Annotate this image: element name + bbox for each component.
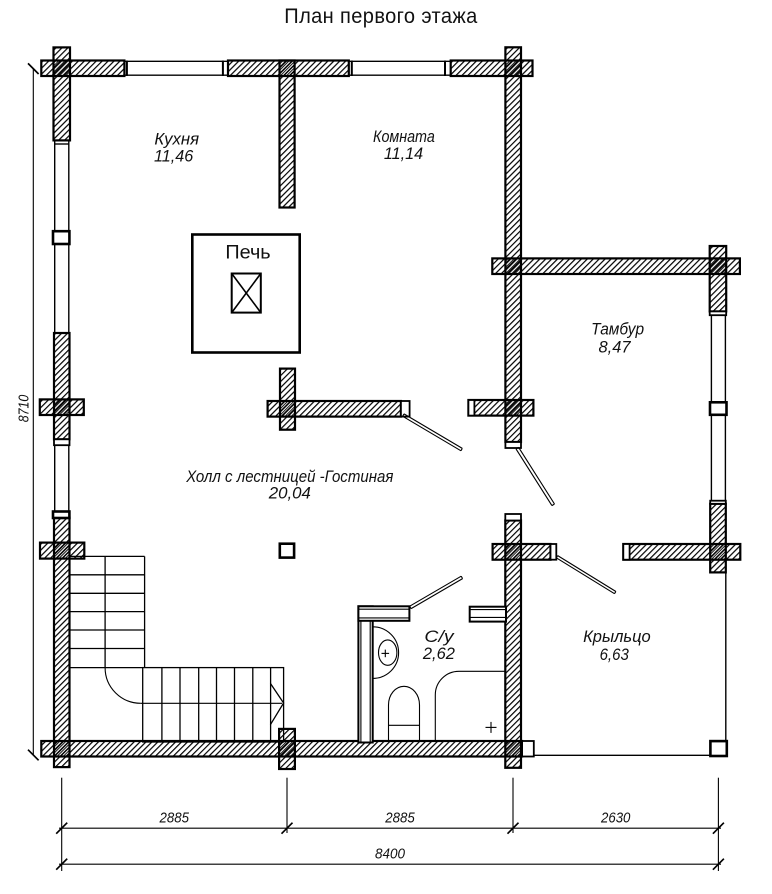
- svg-text:8710: 8710: [17, 395, 33, 423]
- svg-text:2885: 2885: [159, 811, 190, 827]
- svg-text:Печь: Печь: [225, 243, 270, 264]
- svg-text:8,47: 8,47: [598, 339, 631, 357]
- svg-text:С/у: С/у: [424, 628, 455, 646]
- svg-text:20,04: 20,04: [268, 484, 311, 502]
- svg-text:8400: 8400: [375, 847, 405, 863]
- svg-text:2885: 2885: [384, 811, 415, 827]
- svg-text:11,46: 11,46: [154, 147, 194, 165]
- svg-text:2630: 2630: [600, 811, 630, 827]
- svg-text:2,62: 2,62: [422, 645, 455, 663]
- svg-text:Комната: Комната: [373, 128, 435, 146]
- svg-text:Холл с лестницей -Гостиная: Холл с лестницей -Гостиная: [185, 468, 393, 486]
- svg-text:Тамбур: Тамбур: [591, 321, 644, 339]
- svg-text:Кухня: Кухня: [154, 130, 199, 148]
- svg-text:Крыльцо: Крыльцо: [583, 628, 651, 646]
- svg-text:11,14: 11,14: [384, 145, 423, 163]
- svg-text:6,63: 6,63: [600, 646, 630, 664]
- svg-text:План первого этажа: План первого этажа: [284, 5, 477, 28]
